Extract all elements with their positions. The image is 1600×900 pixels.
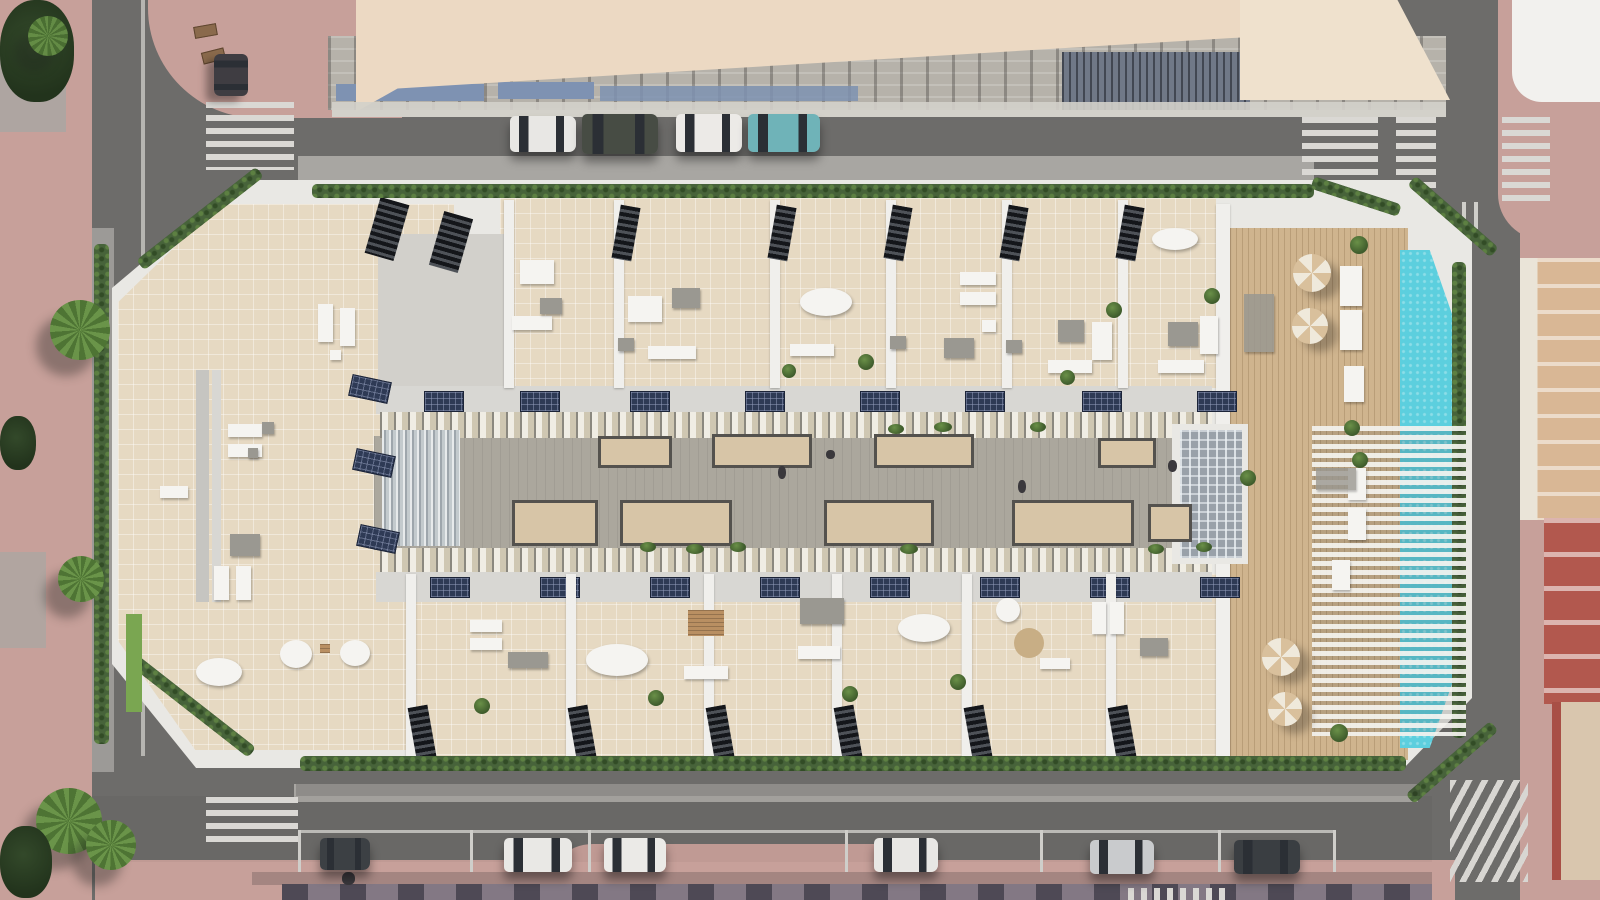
louver-strip-south xyxy=(380,548,1212,572)
lounger xyxy=(236,566,251,600)
bottom-mauve-roofband xyxy=(282,884,1432,900)
table xyxy=(540,298,562,314)
daybed xyxy=(800,598,844,624)
courtyard-bush xyxy=(1196,542,1212,552)
potted-plant xyxy=(1106,302,1122,318)
lounger xyxy=(1348,508,1366,540)
side-table xyxy=(330,350,341,360)
table xyxy=(1168,322,1198,346)
courtyard-skylight xyxy=(1148,504,1192,542)
palm-tree xyxy=(50,300,110,360)
ac-unit xyxy=(1006,340,1022,353)
street-tree xyxy=(0,826,52,898)
potted-plant xyxy=(474,698,490,714)
potted-plant xyxy=(1344,420,1360,436)
dining-table xyxy=(800,288,852,316)
ac-unit xyxy=(890,336,906,349)
courtyard-bush xyxy=(1030,422,1046,432)
solar-panel xyxy=(980,577,1020,598)
dining-table xyxy=(1152,228,1198,250)
courtyard-bush xyxy=(730,542,746,552)
courtyard-skylight xyxy=(620,500,732,546)
daybed xyxy=(944,338,974,358)
lounger xyxy=(1344,366,1364,402)
top-curb-band xyxy=(332,102,1446,117)
courtyard-skylight xyxy=(1098,438,1156,468)
lounger xyxy=(470,620,502,632)
solar-panel xyxy=(745,391,785,412)
dining-table xyxy=(586,644,648,676)
parking-line-bottom xyxy=(298,830,1336,833)
person xyxy=(778,466,786,479)
solar-panel xyxy=(430,577,470,598)
parked-car xyxy=(1090,840,1154,874)
sofa xyxy=(684,666,728,679)
side-table xyxy=(320,644,330,653)
lounger xyxy=(960,292,996,305)
building-south-shadow xyxy=(296,784,1420,796)
person xyxy=(1168,460,1177,472)
lounger xyxy=(214,566,229,600)
umbrella xyxy=(1262,638,1300,676)
crosswalk xyxy=(1502,117,1550,207)
lounger xyxy=(1110,602,1124,634)
parked-car xyxy=(748,114,820,152)
parking-tick xyxy=(588,830,591,872)
potted-plant xyxy=(1060,370,1075,385)
lawn-strip xyxy=(126,614,142,712)
parked-car xyxy=(1234,840,1300,874)
side-table xyxy=(982,320,996,332)
daybed xyxy=(1140,638,1168,656)
daybed xyxy=(1092,322,1112,360)
parking-tick xyxy=(1040,830,1043,872)
palm-tree xyxy=(58,556,104,602)
parked-car xyxy=(320,838,370,870)
lounger xyxy=(340,308,355,346)
daybed xyxy=(628,296,662,322)
solar-panel xyxy=(965,391,1005,412)
side-table xyxy=(248,448,258,458)
lounger xyxy=(1332,560,1350,590)
crosswalk-small xyxy=(1128,888,1230,900)
courtyard-bush xyxy=(640,542,656,552)
lane-dash-right xyxy=(1474,202,1478,229)
perimeter-hedge-north xyxy=(312,184,1314,198)
courtyard-skylight xyxy=(712,434,812,468)
round-daybed xyxy=(996,598,1020,622)
lounger xyxy=(470,638,502,650)
lounger xyxy=(1040,658,1070,669)
crosswalk xyxy=(206,797,298,845)
table xyxy=(672,288,700,308)
palm-tree xyxy=(86,820,136,870)
courtyard-bush xyxy=(900,544,918,554)
solar-panel xyxy=(870,577,910,598)
potted-plant xyxy=(1240,470,1256,486)
potted-plant xyxy=(858,354,874,370)
table xyxy=(1058,320,1084,342)
round-rug xyxy=(1014,628,1044,658)
solar-panel xyxy=(650,577,690,598)
parked-car xyxy=(504,838,572,872)
courtyard-bush xyxy=(686,544,704,554)
potted-plant xyxy=(842,686,858,702)
round-daybed xyxy=(340,640,370,666)
parked-car xyxy=(676,114,742,152)
potted-plant xyxy=(1330,724,1348,742)
courtyard-bush xyxy=(1148,544,1164,554)
solar-panel xyxy=(424,391,464,412)
side-table xyxy=(262,422,274,434)
crosswalk xyxy=(206,102,294,170)
courtyard-bush xyxy=(934,422,952,432)
parking-tick xyxy=(470,830,473,872)
north-building-walk xyxy=(298,156,1314,182)
dining-table xyxy=(196,658,242,686)
sofa xyxy=(790,344,834,356)
topright-white-roof xyxy=(1512,0,1600,102)
potted-plant xyxy=(648,690,664,706)
sofa xyxy=(648,346,696,359)
solar-panel xyxy=(1197,391,1237,412)
terrace-divider xyxy=(504,200,514,388)
parked-car xyxy=(582,114,658,154)
sofa xyxy=(512,316,552,330)
courtyard-skylight xyxy=(598,436,672,468)
right-low-building xyxy=(1552,702,1600,880)
sofa xyxy=(798,646,840,659)
umbrella xyxy=(1292,308,1328,344)
deck-mat xyxy=(1244,294,1274,352)
right-red-building xyxy=(1544,518,1600,704)
courtyard-skylight xyxy=(824,500,934,546)
long-skylight-left xyxy=(196,370,209,602)
potted-plant xyxy=(1204,288,1220,304)
solar-panel xyxy=(1200,577,1240,598)
potted-plant xyxy=(1350,236,1368,254)
palm-tree xyxy=(28,16,68,56)
solar-panel xyxy=(520,391,560,412)
courtyard-skylight xyxy=(874,434,974,468)
lounger xyxy=(160,486,188,498)
perimeter-hedge-south xyxy=(300,756,1406,771)
atrium-skylight-glass xyxy=(382,430,460,546)
solar-panel xyxy=(760,577,800,598)
parking-tick xyxy=(1218,830,1221,872)
round-daybed xyxy=(280,640,312,668)
deck-mat xyxy=(1316,468,1356,490)
lounger xyxy=(960,272,996,285)
solar-panel xyxy=(1082,391,1122,412)
person xyxy=(826,450,835,459)
lounger xyxy=(1092,602,1106,634)
solar-panel xyxy=(630,391,670,412)
potted-plant xyxy=(782,364,796,378)
lounger xyxy=(228,424,262,437)
lounger xyxy=(318,304,333,342)
courtyard-skylight xyxy=(512,500,598,546)
parking-tick xyxy=(298,830,301,872)
parked-car xyxy=(604,838,666,872)
top-awning-blue xyxy=(600,86,858,101)
daybed xyxy=(508,652,548,668)
potted-plant xyxy=(950,674,966,690)
daybed xyxy=(230,534,260,556)
parking-tick xyxy=(845,830,848,872)
umbrella xyxy=(1293,254,1331,292)
lounger xyxy=(1340,310,1362,350)
sofa xyxy=(1158,360,1204,373)
lounger xyxy=(1340,266,1362,306)
dining-table xyxy=(898,614,950,642)
courtyard-bush xyxy=(888,424,904,434)
potted-plant xyxy=(1352,452,1368,468)
person xyxy=(1018,480,1026,493)
slatted-table xyxy=(688,610,724,636)
ac-unit xyxy=(618,338,634,351)
courtyard-skylight xyxy=(1012,500,1134,546)
parked-car-vertical xyxy=(214,54,248,96)
parking-tick xyxy=(1333,830,1336,872)
umbrella xyxy=(1268,692,1302,726)
crosswalk-diagonal xyxy=(1450,780,1528,882)
street-tree xyxy=(0,416,36,470)
solar-panel xyxy=(860,391,900,412)
left-sidewalk-patch xyxy=(0,552,46,648)
parked-car xyxy=(510,116,576,152)
aerial-render-stage xyxy=(0,0,1600,900)
daybed xyxy=(1200,316,1218,354)
daybed xyxy=(520,260,554,284)
top-awning-blue xyxy=(498,82,594,99)
parked-car xyxy=(874,838,938,872)
pedestrian xyxy=(342,872,355,885)
right-tan-building xyxy=(1520,258,1600,520)
